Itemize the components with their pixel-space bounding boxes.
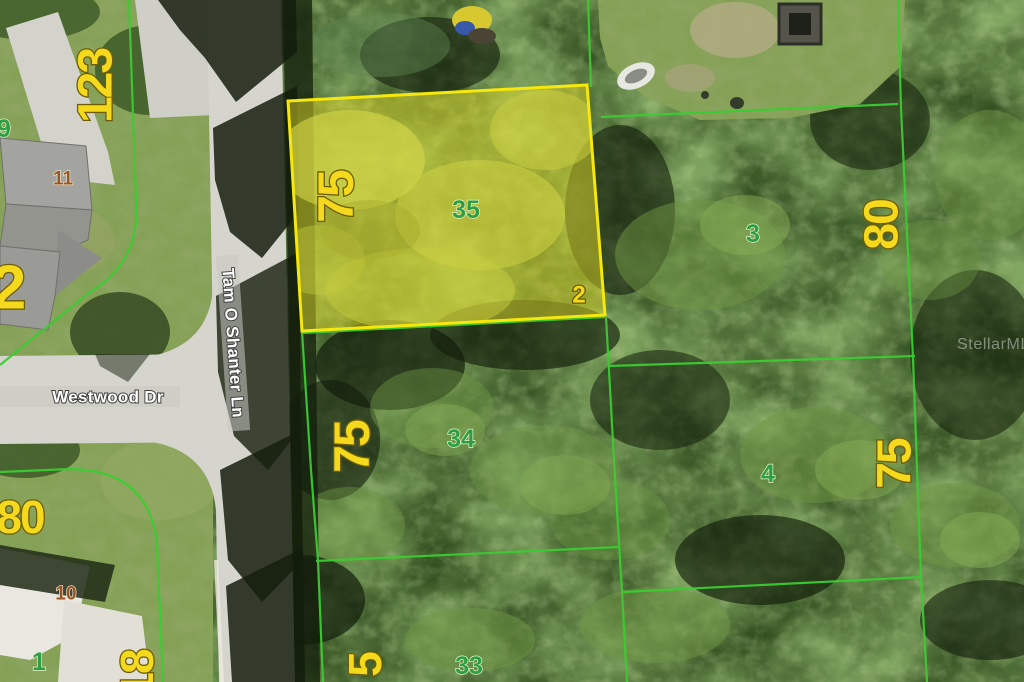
- block-tag-2: 2: [572, 282, 585, 309]
- lot-number-35: 35: [452, 196, 480, 224]
- lot-number-4: 4: [761, 460, 775, 488]
- dimension-label-118-partial: 18: [111, 649, 163, 682]
- house-11-roof: [0, 138, 92, 210]
- lot-number-33: 33: [455, 652, 483, 680]
- street-label-westwood: Westwood Dr: [52, 388, 164, 407]
- lot-number-3: 3: [746, 220, 760, 248]
- aerial-parcel-map: 123 9 11 2 75 35 2 3 80 Westwood Dr Tam …: [0, 0, 1024, 682]
- lot-number-9: 9: [0, 115, 11, 143]
- address-label-11: 11: [53, 169, 74, 190]
- address-label-10: 10: [55, 584, 76, 605]
- watermark-stellar-mls: StellarMLS: [957, 336, 1024, 353]
- dimension-label-75-lot34: 75: [324, 420, 380, 473]
- dimension-label-80-bottom-left: 80: [0, 491, 44, 543]
- dimension-label-2-left: 2: [0, 254, 24, 323]
- dimension-label-75-lot35: 75: [308, 170, 364, 223]
- dimension-label-75-partial: 5: [339, 652, 391, 677]
- dimension-label-75-lot4: 75: [869, 438, 922, 489]
- lot-number-34: 34: [447, 425, 475, 453]
- map-canvas: 123 9 11 2 75 35 2 3 80 Westwood Dr Tam …: [0, 0, 1024, 682]
- dimension-label-80-right: 80: [856, 200, 909, 250]
- lot-number-1: 1: [32, 648, 46, 676]
- dimension-label-123: 123: [70, 49, 123, 123]
